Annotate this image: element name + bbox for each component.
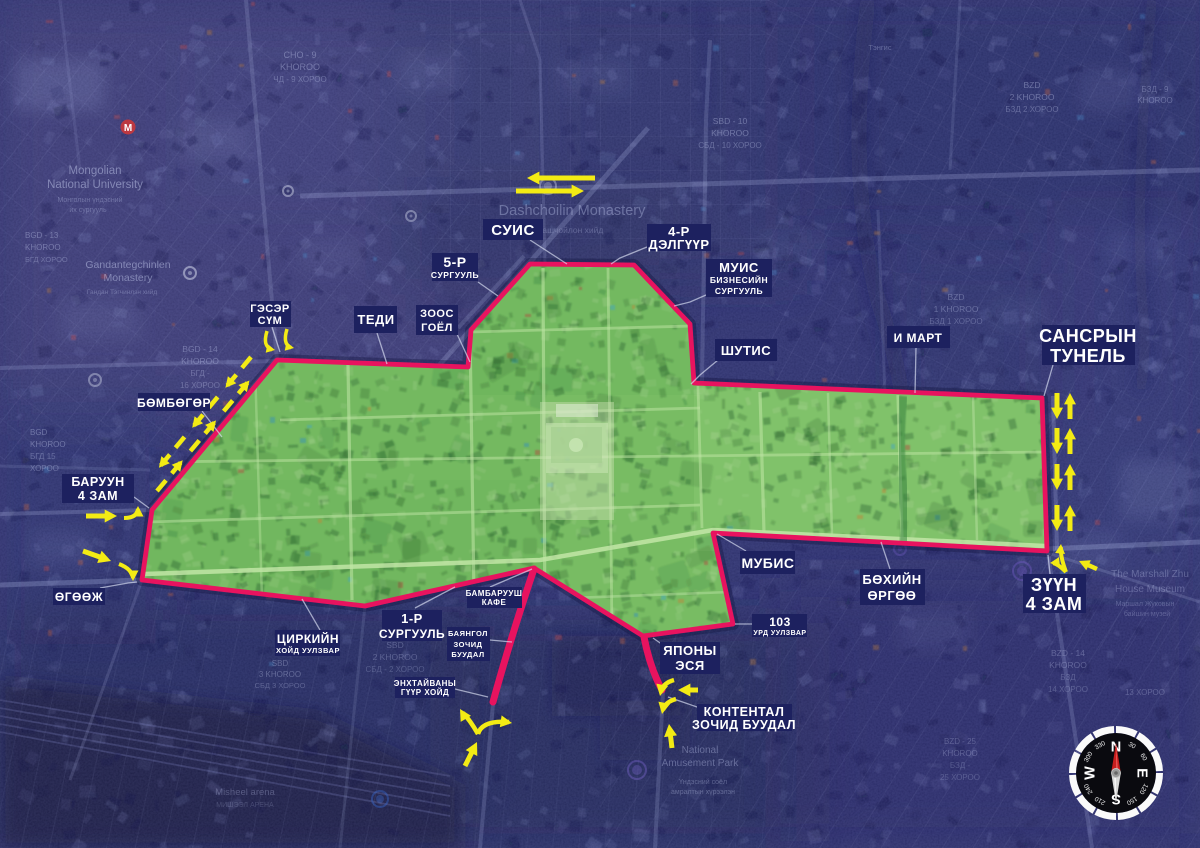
- svg-text:103: 103: [769, 615, 791, 629]
- svg-text:ГЭСЭР: ГЭСЭР: [250, 303, 290, 315]
- svg-text:СБД - 2 ХОРОО: СБД - 2 ХОРОО: [365, 665, 424, 674]
- svg-text:Gandantegchinlen: Gandantegchinlen: [85, 259, 170, 271]
- svg-text:СНО - 9: СНО - 9: [283, 50, 316, 60]
- svg-text:БГД ХОРОО: БГД ХОРОО: [25, 255, 68, 264]
- svg-text:ЦИРКИЙН: ЦИРКИЙН: [277, 631, 339, 646]
- svg-text:BGD - 14: BGD - 14: [182, 344, 218, 354]
- svg-text:E: E: [1134, 768, 1150, 778]
- svg-text:САНСРЫН: САНСРЫН: [1039, 326, 1137, 346]
- svg-text:ЧД - 9 ХОРОО: ЧД - 9 ХОРОО: [273, 75, 326, 84]
- svg-text:ДЭЛГҮҮР: ДЭЛГҮҮР: [648, 237, 709, 252]
- svg-text:Dashchoilin Monastery: Dashchoilin Monastery: [499, 203, 646, 219]
- svg-text:ГОЁЛ: ГОЁЛ: [421, 321, 453, 334]
- svg-text:амралтын хүрээлэн: амралтын хүрээлэн: [671, 789, 735, 796]
- svg-text:ХОРОО: ХОРОО: [30, 464, 59, 473]
- svg-text:БУУДАЛ: БУУДАЛ: [451, 650, 484, 659]
- svg-text:14 ХОРОО: 14 ХОРОО: [1048, 685, 1088, 694]
- svg-text:SBD: SBD: [386, 640, 403, 650]
- svg-text:их сургууль: их сургууль: [69, 207, 107, 214]
- svg-text:БЗД: БЗД: [1060, 673, 1076, 682]
- svg-text:БӨХИЙН: БӨХИЙН: [862, 572, 921, 587]
- svg-text:W: W: [1083, 766, 1099, 780]
- svg-text:МУБИС: МУБИС: [741, 555, 794, 571]
- svg-text:байшин музей: байшин музей: [1124, 610, 1170, 618]
- svg-text:СБД 3 ХОРОО: СБД 3 ХОРОО: [255, 681, 306, 690]
- svg-text:KHOROO: KHOROO: [1049, 660, 1087, 670]
- svg-text:The Marshall Zhu: The Marshall Zhu: [1111, 569, 1189, 580]
- svg-text:БЗД -: БЗД -: [950, 761, 971, 770]
- svg-text:Monastery: Monastery: [103, 272, 153, 284]
- svg-text:BZD - 14: BZD - 14: [1051, 648, 1085, 658]
- svg-text:BGD - 13: BGD - 13: [25, 231, 59, 240]
- svg-text:БАЯНГОЛ: БАЯНГОЛ: [448, 629, 488, 638]
- svg-text:Монголын үндэсний: Монголын үндэсний: [57, 196, 122, 204]
- svg-text:2 KHOROO: 2 KHOROO: [1010, 92, 1055, 102]
- svg-text:ЭНХТАЙВАНЫ: ЭНХТАЙВАНЫ: [394, 679, 456, 688]
- svg-text:ӨРГӨӨ: ӨРГӨӨ: [868, 588, 917, 603]
- svg-text:KHOROO: KHOROO: [280, 62, 320, 72]
- svg-text:4 ЗАМ: 4 ЗАМ: [78, 489, 118, 503]
- svg-text:ЯПОНЫ: ЯПОНЫ: [663, 643, 716, 658]
- svg-text:ТЕДИ: ТЕДИ: [357, 312, 394, 327]
- svg-text:ЗОЧИД: ЗОЧИД: [454, 640, 483, 649]
- svg-text:И МАРТ: И МАРТ: [894, 331, 943, 345]
- svg-text:БАРУУН: БАРУУН: [71, 475, 124, 489]
- svg-text:KHOROO: KHOROO: [1137, 96, 1173, 105]
- svg-text:13 ХОРОО: 13 ХОРОО: [1125, 688, 1165, 697]
- svg-text:БЗД 1 ХОРОО: БЗД 1 ХОРОО: [929, 317, 982, 326]
- svg-text:4 ЗАМ: 4 ЗАМ: [1026, 594, 1083, 614]
- svg-text:BZD - 25: BZD - 25: [944, 737, 977, 746]
- svg-text:БГД -: БГД -: [190, 369, 210, 378]
- svg-text:КОНТЕНТАЛ: КОНТЕНТАЛ: [704, 705, 785, 719]
- svg-text:СҮМ: СҮМ: [258, 315, 283, 327]
- svg-text:МИШЭЭЛ АРЕНА: МИШЭЭЛ АРЕНА: [216, 802, 274, 809]
- svg-text:КАФЕ: КАФЕ: [482, 598, 507, 607]
- svg-text:KHOROO: KHOROO: [942, 749, 978, 758]
- svg-text:СУРГУУЛЬ: СУРГУУЛЬ: [431, 270, 479, 280]
- svg-text:1-Р: 1-Р: [401, 611, 423, 626]
- svg-text:M: M: [124, 123, 132, 134]
- svg-text:KHOROO: KHOROO: [30, 440, 66, 449]
- svg-text:25 ХОРОО: 25 ХОРОО: [940, 773, 980, 782]
- svg-text:BZD: BZD: [1024, 80, 1041, 90]
- svg-text:16 ХОРОО: 16 ХОРОО: [180, 381, 220, 390]
- svg-text:SBD: SBD: [272, 659, 289, 668]
- svg-text:Дашчойлон хийд: Дашчойлон хийд: [537, 225, 604, 235]
- svg-text:ЭСЯ: ЭСЯ: [675, 658, 704, 673]
- svg-text:СУИС: СУИС: [491, 222, 535, 239]
- svg-text:Гандан Тэгчинлэн хийд: Гандан Тэгчинлэн хийд: [87, 288, 157, 296]
- svg-text:ЗОЧИД БУУДАЛ: ЗОЧИД БУУДАЛ: [692, 718, 796, 732]
- svg-text:Үндэсний соёл: Үндэсний соёл: [679, 778, 727, 786]
- svg-text:National: National: [682, 745, 719, 756]
- svg-text:National University: National University: [47, 179, 143, 191]
- svg-text:House Museum: House Museum: [1115, 584, 1185, 595]
- svg-text:3 KHOROO: 3 KHOROO: [259, 670, 301, 679]
- svg-text:СУРГУУЛЬ: СУРГУУЛЬ: [715, 286, 763, 296]
- svg-text:БИЗНЕСИЙН: БИЗНЕСИЙН: [710, 274, 768, 285]
- svg-text:СУРГУУЛЬ: СУРГУУЛЬ: [379, 627, 445, 641]
- svg-text:KHOROO: KHOROO: [181, 356, 219, 366]
- svg-text:1 KHOROO: 1 KHOROO: [934, 304, 979, 314]
- svg-text:Amusement Park: Amusement Park: [662, 758, 740, 769]
- svg-text:ТУНЕЛЬ: ТУНЕЛЬ: [1050, 346, 1126, 366]
- svg-text:БЗД - 9: БЗД - 9: [1142, 85, 1170, 94]
- svg-text:SBD - 10: SBD - 10: [713, 116, 748, 126]
- svg-text:BGD: BGD: [30, 428, 48, 437]
- svg-text:2 KHOROO: 2 KHOROO: [373, 652, 418, 662]
- svg-text:ШУТИС: ШУТИС: [721, 343, 771, 358]
- svg-text:ГҮҮР ХОЙД: ГҮҮР ХОЙД: [401, 688, 449, 697]
- svg-text:УРД УУЛЗВАР: УРД УУЛЗВАР: [753, 630, 806, 637]
- svg-text:ЗҮҮН: ЗҮҮН: [1031, 575, 1077, 595]
- svg-text:БАМБАРУУШ: БАМБАРУУШ: [466, 589, 523, 598]
- svg-text:Маршал Жуковын: Маршал Жуковын: [1116, 601, 1175, 608]
- svg-text:Mongolian: Mongolian: [68, 165, 121, 177]
- svg-text:KHOROO: KHOROO: [711, 128, 749, 138]
- svg-text:БГД 15: БГД 15: [30, 452, 56, 461]
- svg-text:БӨМБӨГӨР: БӨМБӨГӨР: [137, 396, 211, 410]
- svg-text:ӨГӨӨЖ: ӨГӨӨЖ: [55, 590, 103, 604]
- svg-text:Misheel arena: Misheel arena: [215, 787, 275, 798]
- svg-text:ЗООС: ЗООС: [420, 308, 454, 320]
- svg-text:СБД - 10 ХОРОО: СБД - 10 ХОРОО: [698, 141, 762, 150]
- svg-text:БЗД 2 ХОРОО: БЗД 2 ХОРОО: [1005, 105, 1058, 114]
- svg-text:Тэнгис: Тэнгис: [868, 43, 891, 52]
- svg-text:5-Р: 5-Р: [443, 254, 466, 270]
- svg-text:МУИС: МУИС: [719, 260, 759, 275]
- svg-text:BZD: BZD: [948, 292, 965, 302]
- svg-text:KHOROO: KHOROO: [25, 243, 61, 252]
- svg-text:ХОЙД УУЛЗВАР: ХОЙД УУЛЗВАР: [276, 646, 340, 655]
